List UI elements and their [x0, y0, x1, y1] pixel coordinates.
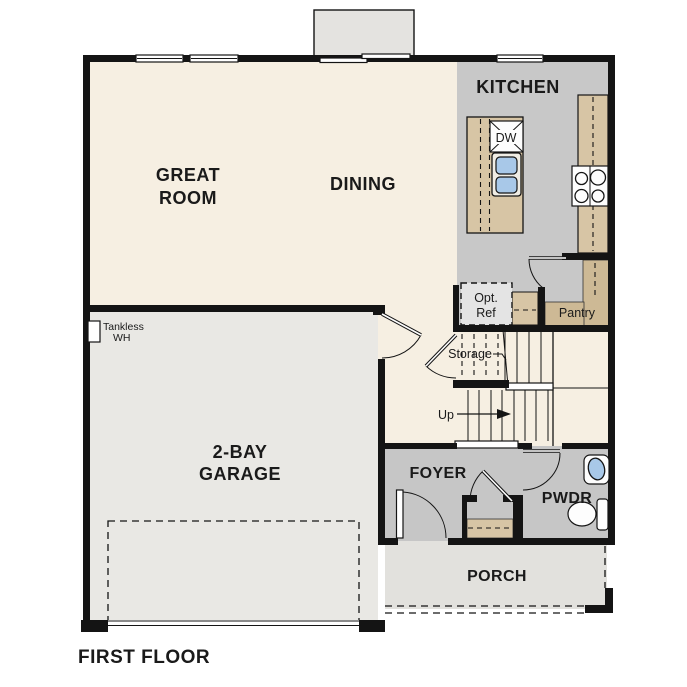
- range-icon: [572, 166, 608, 206]
- tankless-water-heater: [88, 321, 100, 342]
- wall-closet-left: [462, 495, 467, 541]
- plan-title: FIRST FLOOR: [78, 647, 210, 668]
- up-label: Up: [438, 408, 454, 422]
- window-kitchen: [497, 55, 543, 62]
- powder-label: PWDR: [542, 490, 593, 507]
- wall-front-right: [448, 538, 613, 545]
- storage-label: Storage: [448, 347, 492, 361]
- kitchen-sink: [492, 153, 521, 196]
- great-room-label-2: ROOM: [159, 188, 217, 208]
- wall-pwdr-top-right: [562, 443, 613, 449]
- wall-greatroom-garage: [83, 305, 385, 312]
- wall-kitchen-bottom: [453, 325, 615, 332]
- wall-optref-left: [453, 285, 459, 327]
- dining-label: DINING: [330, 174, 396, 194]
- patio-landing: [314, 10, 414, 57]
- window-greatroom-2: [190, 55, 238, 62]
- foyer-label: FOYER: [409, 465, 466, 482]
- porch-label: PORCH: [467, 568, 527, 585]
- wall-garage-right: [378, 359, 385, 545]
- wall-pwdr-top-left: [518, 443, 532, 449]
- wall-pantry-left: [538, 287, 545, 330]
- pantry-label: Pantry: [559, 306, 596, 320]
- wall-closet-right: [513, 495, 523, 541]
- floor-plan: GREAT ROOM DINING KITCHEN 2-BAY GARAGE F…: [0, 0, 687, 687]
- wall-garage-post-left: [81, 620, 108, 632]
- cabinet: [512, 292, 538, 325]
- powder-sink: [584, 455, 609, 484]
- opt-ref-label-2: Ref: [476, 306, 496, 320]
- floor-plan-page: GREAT ROOM DINING KITCHEN 2-BAY GARAGE F…: [0, 0, 687, 687]
- wall-pantry-top: [562, 253, 615, 260]
- wall-front-left: [378, 538, 398, 545]
- window-greatroom-1: [136, 55, 183, 62]
- dishwasher-label: DW: [496, 131, 517, 145]
- stair-bottom-tread: [455, 441, 518, 448]
- wall-foyer-top: [378, 443, 457, 449]
- opt-ref-label-1: Opt.: [474, 291, 498, 305]
- great-room-label-1: GREAT: [156, 165, 220, 185]
- wall-storage-bottom: [453, 380, 509, 388]
- kitchen-label: KITCHEN: [476, 77, 560, 97]
- water-heater-label-2: WH: [113, 332, 131, 344]
- wall-garage-post-right: [359, 620, 385, 632]
- garage-label-1: 2-BAY: [213, 442, 268, 462]
- stair-landing: [506, 383, 553, 390]
- garage-label-2: GARAGE: [199, 464, 281, 484]
